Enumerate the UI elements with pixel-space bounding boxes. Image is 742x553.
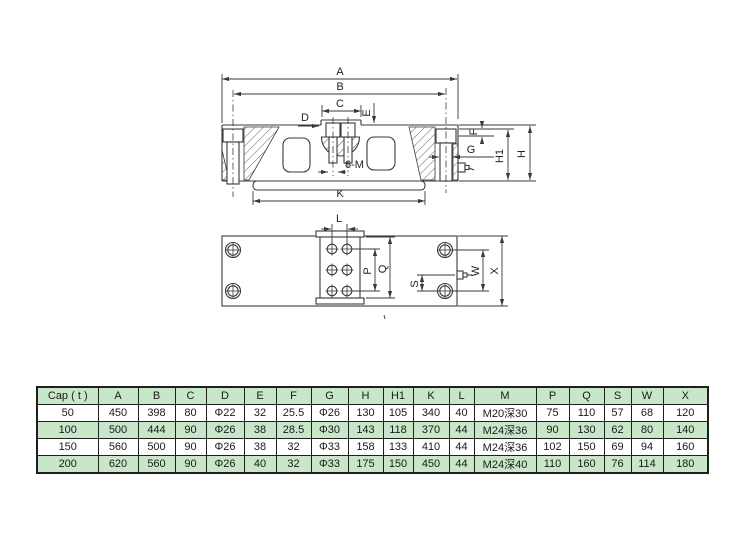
- table-cell: 38: [244, 422, 276, 439]
- dim-label-e: E: [361, 109, 373, 116]
- table-cell: 44: [449, 456, 474, 474]
- table-cell: 143: [348, 422, 383, 439]
- dim-label-c: C: [336, 98, 344, 110]
- column-header: X: [663, 387, 708, 405]
- dim-label-d: D: [301, 112, 309, 124]
- dim-label-p: P: [362, 267, 374, 274]
- dim-label-g: G: [467, 144, 476, 156]
- dim-label-b: B: [336, 81, 343, 93]
- bolt-hole: [437, 283, 453, 299]
- column-header: B: [138, 387, 175, 405]
- column-header: D: [206, 387, 244, 405]
- table-cell: 410: [413, 439, 449, 456]
- table-cell: 75: [536, 405, 569, 422]
- column-header: G: [311, 387, 348, 405]
- column-header: S: [604, 387, 631, 405]
- table-cell: M24深36: [474, 439, 536, 456]
- table-cell: 560: [98, 439, 138, 456]
- side-view-drawing: A B C D E F G H1 H K 6-M: [222, 66, 536, 205]
- dim-label-a: A: [336, 66, 344, 78]
- table-cell: Φ33: [311, 439, 348, 456]
- table-cell: 118: [383, 422, 413, 439]
- tick-mark: [384, 315, 385, 319]
- table-cell: 32: [276, 439, 311, 456]
- center-block: [316, 231, 364, 304]
- dim-label-h: H: [516, 150, 528, 158]
- table-row: 15056050090Φ263832Φ3315813341044M24深3610…: [37, 439, 708, 456]
- table-row: 20062056090Φ264032Φ3317515045044M24深4011…: [37, 456, 708, 474]
- table-cell: 150: [383, 456, 413, 474]
- table-cell: 450: [413, 456, 449, 474]
- spec-table-container: Cap ( t )ABCDEFGHH1KLMPQSWX 5045039880Φ2…: [36, 386, 709, 474]
- table-cell: 130: [569, 422, 604, 439]
- table-cell: 25.5: [276, 405, 311, 422]
- table-cell: 110: [536, 456, 569, 474]
- table-cell: 40: [449, 405, 474, 422]
- table-cell: 120: [663, 405, 708, 422]
- table-cell: Φ26: [206, 456, 244, 474]
- header-row: Cap ( t )ABCDEFGHH1KLMPQSWX: [37, 387, 708, 405]
- column-header: L: [449, 387, 474, 405]
- table-cell: 100: [37, 422, 98, 439]
- table-cell: 32: [276, 456, 311, 474]
- dim-label-q: Q: [377, 264, 389, 273]
- table-cell: Φ22: [206, 405, 244, 422]
- table-cell: 62: [604, 422, 631, 439]
- column-header: H1: [383, 387, 413, 405]
- table-cell: Φ26: [206, 439, 244, 456]
- table-cell: 90: [175, 422, 206, 439]
- table-cell: 370: [413, 422, 449, 439]
- dim-label-l: L: [336, 213, 342, 225]
- table-cell: 158: [348, 439, 383, 456]
- dim-label-h1: H1: [494, 149, 506, 163]
- table-cell: 150: [569, 439, 604, 456]
- table-cell: 140: [663, 422, 708, 439]
- table-cell: 150: [37, 439, 98, 456]
- table-cell: 160: [663, 439, 708, 456]
- table-cell: 560: [138, 456, 175, 474]
- table-cell: 180: [663, 456, 708, 474]
- technical-drawing: A B C D E F G H1 H K 6-M: [0, 0, 742, 345]
- table-cell: Φ26: [311, 405, 348, 422]
- table-cell: 94: [631, 439, 663, 456]
- table-cell: 57: [604, 405, 631, 422]
- column-header: Cap ( t ): [37, 387, 98, 405]
- table-cell: M20深30: [474, 405, 536, 422]
- table-cell: 90: [175, 439, 206, 456]
- column-header: C: [175, 387, 206, 405]
- table-cell: 44: [449, 422, 474, 439]
- bolt-hole: [225, 242, 241, 258]
- spec-table-head: Cap ( t )ABCDEFGHH1KLMPQSWX: [37, 387, 708, 405]
- bolt-hole: [225, 283, 241, 299]
- dim-label-f: F: [468, 128, 480, 135]
- column-header: P: [536, 387, 569, 405]
- table-cell: 38: [244, 439, 276, 456]
- table-cell: 340: [413, 405, 449, 422]
- table-cell: 68: [631, 405, 663, 422]
- table-cell: 130: [348, 405, 383, 422]
- dim-label-w: W: [470, 265, 482, 276]
- table-cell: 500: [138, 439, 175, 456]
- column-header: M: [474, 387, 536, 405]
- column-header: H: [348, 387, 383, 405]
- table-cell: 175: [348, 456, 383, 474]
- table-cell: 102: [536, 439, 569, 456]
- table-cell: 105: [383, 405, 413, 422]
- column-header: E: [244, 387, 276, 405]
- table-cell: Φ30: [311, 422, 348, 439]
- table-cell: M24深36: [474, 422, 536, 439]
- spec-table: Cap ( t )ABCDEFGHH1KLMPQSWX 5045039880Φ2…: [36, 386, 709, 474]
- table-cell: 50: [37, 405, 98, 422]
- cable-gland: [458, 163, 474, 172]
- bolt-hole: [437, 242, 453, 258]
- column-header: K: [413, 387, 449, 405]
- table-cell: 620: [98, 456, 138, 474]
- table-cell: 450: [98, 405, 138, 422]
- table-cell: 444: [138, 422, 175, 439]
- column-header: Q: [569, 387, 604, 405]
- table-row: 5045039880Φ223225.5Φ2613010534040M20深307…: [37, 405, 708, 422]
- cutout-hole: [367, 137, 395, 170]
- top-view-drawing: L P Q S W X: [222, 213, 508, 319]
- cutout-hole: [283, 138, 310, 172]
- table-cell: M24深40: [474, 456, 536, 474]
- table-cell: 90: [536, 422, 569, 439]
- dim-label-k: K: [336, 188, 344, 200]
- table-cell: 76: [604, 456, 631, 474]
- table-cell: 40: [244, 456, 276, 474]
- table-cell: 28.5: [276, 422, 311, 439]
- table-cell: Φ26: [206, 422, 244, 439]
- table-cell: 160: [569, 456, 604, 474]
- table-cell: 69: [604, 439, 631, 456]
- table-cell: 500: [98, 422, 138, 439]
- spec-table-body: 5045039880Φ223225.5Φ2613010534040M20深307…: [37, 405, 708, 474]
- table-cell: 133: [383, 439, 413, 456]
- table-cell: 80: [631, 422, 663, 439]
- column-header: W: [631, 387, 663, 405]
- dim-label-6m: 6-M: [345, 159, 364, 171]
- table-cell: 90: [175, 456, 206, 474]
- table-cell: 398: [138, 405, 175, 422]
- table-cell: 80: [175, 405, 206, 422]
- column-header: F: [276, 387, 311, 405]
- column-header: A: [98, 387, 138, 405]
- table-cell: 200: [37, 456, 98, 474]
- table-cell: 32: [244, 405, 276, 422]
- table-cell: 114: [631, 456, 663, 474]
- table-cell: 44: [449, 439, 474, 456]
- table-cell: Φ33: [311, 456, 348, 474]
- dim-label-s: S: [409, 280, 421, 287]
- table-cell: 110: [569, 405, 604, 422]
- table-row: 10050044490Φ263828.5Φ3014311837044M24深36…: [37, 422, 708, 439]
- dim-label-x: X: [489, 267, 501, 275]
